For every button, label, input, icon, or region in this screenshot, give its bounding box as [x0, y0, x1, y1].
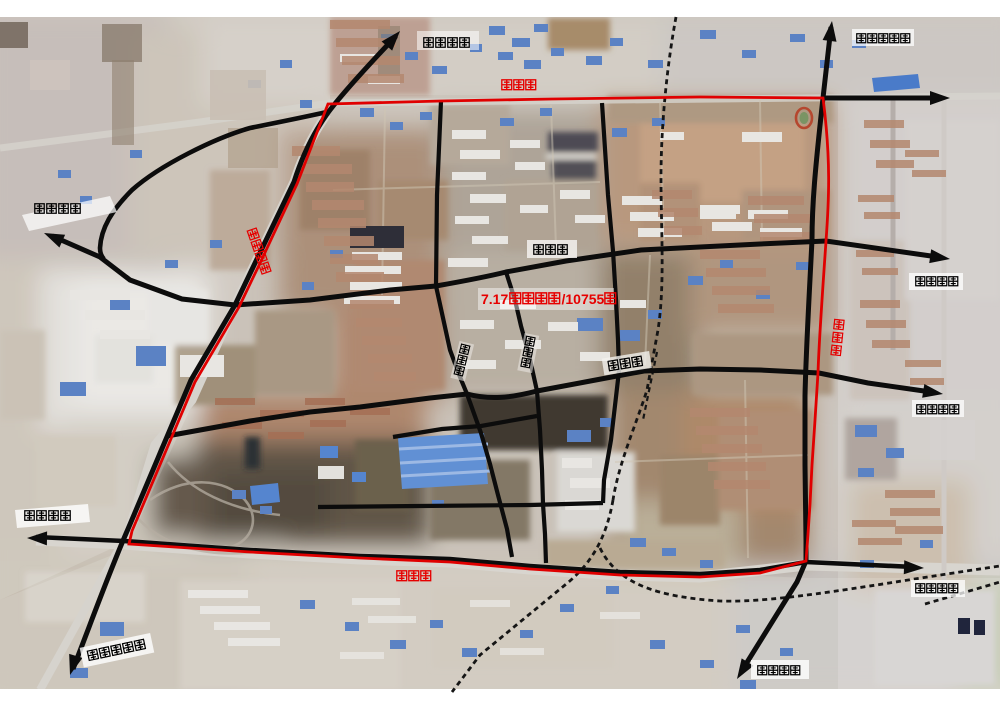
svg-text:7.17: 7.17	[481, 291, 508, 307]
svg-text:/10755: /10755	[562, 291, 605, 307]
